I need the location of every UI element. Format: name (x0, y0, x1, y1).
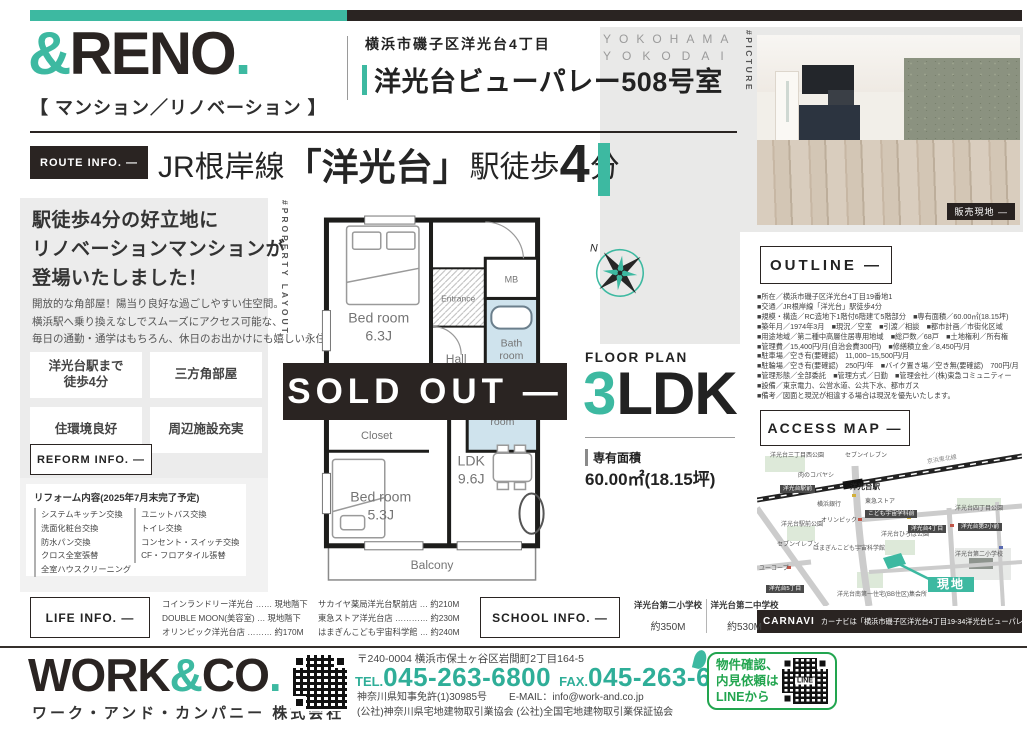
route-info-label: ROUTE INFO. — (30, 146, 148, 179)
feature-badge: 三方角部屋 (150, 352, 262, 398)
map-label: オリンピック (821, 518, 857, 525)
lead-headline-line: 登場いたしました！ (32, 264, 285, 293)
email-address: E-MAIL：info@work-and.co.jp (509, 688, 644, 703)
life-info-item: 東急ストア洋光台店 ………… 約230M (318, 612, 460, 626)
school-distance: 約350M (630, 618, 706, 633)
reform-item: 全室ハウスクリーニング (34, 563, 131, 577)
map-label: こども宇宙学科前 (865, 510, 917, 518)
map-label: 洋光台5丁目 (766, 585, 804, 593)
school-name: 洋光台第二中学校 (707, 599, 782, 611)
brand-tagline: 【 マンション／リノベーション 】 (30, 94, 327, 120)
life-info-item: コインランドリー洋光台 …… 現地階下 (162, 598, 308, 612)
line-qr-code: LINE (782, 658, 828, 704)
plan-label-mb: MB (505, 274, 519, 284)
property-title-text: 洋光台ビューパレー508号室 (374, 60, 723, 99)
life-info-label: LIFE INFO. — (30, 597, 150, 638)
company-logo-word1: WORK (28, 649, 170, 701)
plan-label-bed1-size: 6.3J (365, 328, 392, 344)
lead-headline-line: 駅徒歩4分の好立地に (32, 206, 285, 235)
top-dark-bar (347, 10, 1022, 21)
outline-row: ■駐輪場／空き有(要確認) 250円/年 ■バイク置き場／空き無(要確認) 70… (757, 361, 1025, 371)
access-map-label: ACCESS MAP — (760, 410, 910, 446)
plan-type-rule (585, 437, 735, 438)
plan-label-bath1: Bath (501, 338, 523, 350)
outline-row: ■築年月／1974年3月 ■現況／空室 ■引渡／相談 ■都市計画／市街化区域 (757, 322, 1025, 332)
sold-out-banner: SOLD OUT ― (283, 363, 567, 420)
map-label: 東急ストア (865, 499, 895, 506)
fax-label: FAX. (559, 674, 588, 689)
reform-box: リフォーム内容(2025年7月末完了予定) システムキッチン交換洗面化粧台交換防… (26, 484, 246, 576)
reform-item: 防水パン交換 (34, 536, 131, 550)
life-info-item: サカイヤ薬局洋光台駅前店 … 約210M (318, 598, 460, 612)
outline-row: ■交通／JR根岸線「洋光台」駅徒歩4分 (757, 302, 1025, 312)
plan-bed1-icon (347, 226, 419, 304)
plan-label-ldk: LDK (458, 452, 486, 468)
access-map: 洋光台三丁目西公園セブンイレブン京浜東北線肉のコバヤシ洋光台駅前洋光台駅横浜銀行… (757, 450, 1022, 606)
plan-label-ldk-size: 9.6J (458, 470, 485, 486)
plan-label-closet2: Closet (361, 430, 392, 442)
map-label: 洋光台ひろば公園 (881, 532, 929, 539)
life-info-col2: サカイヤ薬局洋光台駅前店 … 約210M東急ストア洋光台店 ………… 約230M… (318, 598, 460, 639)
map-label: 洋光台第2小前 (958, 523, 1002, 531)
school-entry: 洋光台第二中学校 約530M (706, 599, 782, 633)
line-contact-box: 物件確認、内見依頼はLINEから LINE (707, 652, 837, 710)
kicker-text: YOKOHAMA YOKODAI (603, 31, 736, 65)
lead-headline: 駅徒歩4分の好立地にリノベーションマンションが登場いたしました！ (32, 206, 285, 293)
license-row: 神奈川県知事免許(1)30985号 E-MAIL：info@work-and.c… (357, 688, 644, 703)
plan-type-suffix: LDK (616, 360, 736, 427)
kicker-line2: YOKODAI (603, 48, 736, 65)
map-label: 横浜銀行 (817, 502, 841, 509)
reform-list-col2: ユニットバス交換トイレ交換コンセント・スイッチ交換CF・フロアタイル張替 (134, 508, 239, 577)
compass-north-label: N (590, 243, 598, 255)
association-memberships: (公社)神奈川県宅地建物取引業協会 (公社)全国宅地建物取引業保証協会 (357, 703, 673, 718)
outline-label: OUTLINE — (760, 246, 892, 284)
outline-row: ■駐車場／空き有(要確認) 11,000~15,500円/月 (757, 351, 1025, 361)
map-label: 洋光台南第一住宅(BB住区)集会所 (837, 592, 927, 599)
map-label: 洋光台駅前公園 (781, 522, 823, 529)
plan-label-bath2: room (499, 350, 523, 362)
life-info-item: はまぎんこども宇宙科学館 … 約240M (318, 626, 460, 640)
feature-badge: 周辺施設充実 (150, 407, 262, 453)
reform-item: システムキッチン交換 (34, 508, 131, 522)
plan-label-bed1: Bed room (348, 310, 409, 326)
outline-row: ■備考／図面と現況が相違する場合は現況を優先いたします。 (757, 391, 1025, 401)
title-accent-tick (362, 65, 367, 95)
reform-item: CF・フロアタイル張替 (134, 549, 239, 563)
floor-plan-type: 3LDK (583, 364, 737, 424)
map-label: 現地 (928, 577, 974, 592)
route-text: JR根岸線「洋光台」駅徒歩4分 (158, 136, 620, 192)
lead-headline-line: リノベーションマンションが (32, 235, 285, 264)
plan-bathtub-icon (491, 307, 531, 329)
footer-rule (0, 646, 1027, 648)
carnavi-bar: CARNAVI カーナビは「横浜市磯子区洋光台4丁目19-34洋光台ビューパレー… (757, 610, 1022, 633)
plan-label-balcony: Balcony (411, 558, 454, 572)
property-layout-tag: #PROPERTY LAYOUT (280, 200, 290, 336)
life-info-item: DOUBLE MOON(美容室) … 現地階下 (162, 612, 308, 626)
map-label: 洋光台駅 (850, 483, 880, 491)
company-logo: WORK&CO. (28, 652, 281, 698)
map-label: ユーコープ (759, 566, 789, 573)
map-label: セブンイレブン (845, 453, 887, 460)
school-name: 洋光台第二小学校 (630, 599, 706, 611)
logo-name: RENO (69, 20, 234, 87)
school-info-entries: 洋光台第二小学校 約350M 洋光台第二中学校 約530M (630, 599, 782, 633)
kicker-line1: YOKOHAMA (603, 31, 736, 48)
map-label: はまぎんこども宇宙科学館 (813, 546, 885, 553)
reform-item: ユニットバス交換 (134, 508, 239, 522)
flyer-page: &RENO. 【 マンション／リノベーション 】 横浜市磯子区洋光台4丁目 洋光… (0, 0, 1027, 730)
header-rule (30, 131, 737, 133)
outline-row: ■管理費／15,400円/月(自治会費300円) ■修繕積立金／8,450円/月 (757, 342, 1025, 352)
map-label: 肉のコバヤシ (798, 473, 834, 480)
route-line-name: JR根岸線 (158, 142, 285, 186)
company-logo-dot: . (269, 649, 281, 701)
company-qr-code (291, 653, 349, 711)
carnavi-text: カーナビは「横浜市磯子区洋光台4丁目19-34洋光台ビューパレー」とセット (821, 617, 1027, 627)
school-entry: 洋光台第二小学校 約350M (630, 599, 706, 633)
photo-door (775, 71, 799, 147)
plan-label-bed2: Bed room (350, 489, 411, 505)
line-contact-line: 内見依頼は (716, 673, 779, 689)
line-contact-text: 物件確認、内見依頼はLINEから (716, 657, 779, 706)
line-contact-line: LINEから (716, 689, 779, 705)
plan-label-entrance: Entrance (441, 293, 475, 303)
photo-caption: 販売現地 ― (947, 203, 1015, 220)
company-logo-word2: CO (202, 649, 269, 701)
exclusive-area-label: 専有面積 (585, 449, 641, 466)
reform-item: クロス全室張替 (34, 549, 131, 563)
route-station: 洋光台 (322, 137, 433, 191)
line-contact-line: 物件確認、 (716, 657, 779, 673)
compass-icon: N (588, 240, 650, 302)
company-logo-ampersand: & (170, 649, 202, 701)
life-info-col1: コインランドリー洋光台 …… 現地階下DOUBLE MOON(美容室) … 現地… (162, 598, 308, 639)
map-label: 洋光台駅前 (780, 485, 815, 493)
map-label: 洋光台四丁目公園 (955, 506, 1003, 513)
reform-title: リフォーム内容(2025年7月末完了予定) (34, 490, 238, 504)
outline-row: ■所在／横浜市磯子区洋光台4丁目19番地1 (757, 292, 1025, 302)
feature-badge: 洋光台駅まで 徒歩4分 (30, 352, 142, 398)
license-number: 神奈川県知事免許(1)30985号 (357, 688, 487, 703)
life-info-item: オリンピック洋光台店 ……… 約170M (162, 626, 308, 640)
interior-photo: 販売現地 ― (757, 35, 1020, 225)
plan-type-number: 3 (583, 360, 616, 427)
route-quote-open: 「 (285, 137, 322, 191)
plan-label-bed2-size: 5.3J (367, 507, 394, 523)
reform-item: 洗面化粧台交換 (34, 522, 131, 536)
school-distance: 約530M (707, 618, 782, 633)
outline-row: ■規模・構造／RC造地下1階付6階建て5階部分 ■専有面積／60.00㎡(18.… (757, 312, 1025, 322)
map-label: 洋光台三丁目西公園 (770, 453, 824, 460)
tel-label: TEL. (355, 674, 383, 689)
property-address: 横浜市磯子区洋光台4丁目 (365, 34, 551, 54)
logo-ampersand: & (28, 20, 69, 87)
property-title: 洋光台ビューパレー508号室 (362, 60, 723, 99)
map-label: 洋光台第二小学校 (955, 552, 1003, 559)
reform-item: コンセント・スイッチ交換 (134, 536, 239, 550)
brand-logo: &RENO. (28, 24, 249, 84)
picture-tag: #PICTURE (744, 30, 754, 92)
line-qr-label: LINE (795, 678, 815, 685)
route-walk-prefix: 駅徒歩 (470, 142, 560, 186)
logo-dot: . (235, 20, 250, 87)
header-divider (347, 36, 348, 100)
reform-list-col1: システムキッチン交換洗面化粧台交換防水パン交換クロス全室張替全室ハウスクリーニン… (34, 508, 131, 577)
outline-row: ■管理形態／全部委託 ■管理方式／日勤 ■管理会社／(株)東急コミュニティー (757, 371, 1025, 381)
school-info-label: SCHOOL INFO. — (480, 597, 620, 638)
outline-rows: ■所在／横浜市磯子区洋光台4丁目19番地1■交通／JR根岸線「洋光台」駅徒歩4分… (757, 292, 1025, 401)
photo-range-hood (828, 90, 854, 105)
feature-badges: 洋光台駅まで 徒歩4分三方角部屋住環境良好周辺施設充実 (30, 352, 262, 453)
outline-row: ■用途地域／第二種中高層住居専用地域 ■総戸数／68戸 ■土地権利／所有権 (757, 332, 1025, 342)
outline-row: ■設備／東京電力、公営水道、公共下水、都市ガス (757, 381, 1025, 391)
route-accent-block (598, 143, 610, 196)
route-walk-minutes: 4 (560, 137, 590, 191)
route-quote-close: 」 (433, 137, 470, 191)
exclusive-area-value: 60.00㎡(18.15坪) (585, 465, 715, 490)
reform-info-label: REFORM INFO. — (30, 444, 152, 475)
reform-item: トイレ交換 (134, 522, 239, 536)
